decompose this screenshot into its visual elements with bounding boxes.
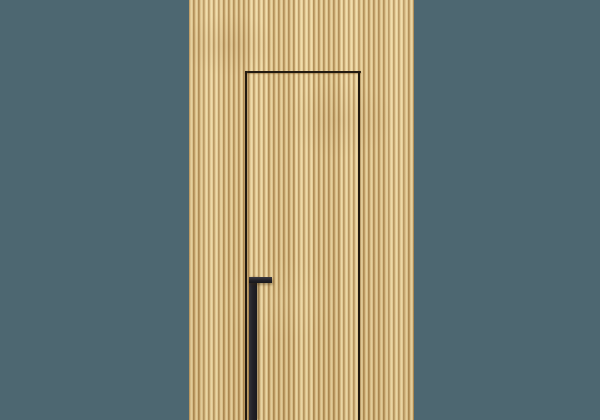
door-seam-top (245, 71, 361, 73)
scene (0, 0, 600, 420)
handle-grip-bar (249, 277, 257, 420)
handle-top-cap (249, 277, 272, 283)
fluted-wood-panel (189, 0, 414, 420)
door-seam-right (358, 71, 360, 420)
door-seam-left (245, 71, 247, 420)
